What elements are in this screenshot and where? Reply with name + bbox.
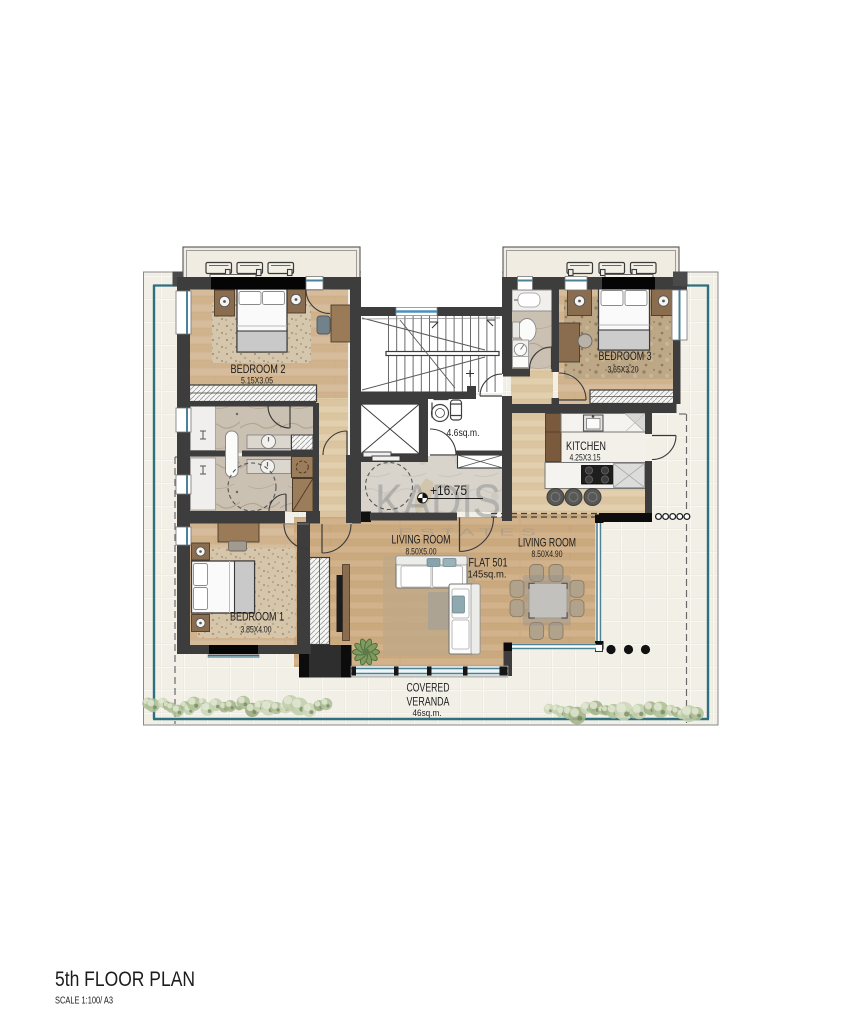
svg-text:46sq.m.: 46sq.m. [413,708,442,718]
svg-text:LIVING ROOM: LIVING ROOM [518,536,576,550]
svg-text:145sq.m.: 145sq.m. [468,569,507,581]
svg-text:VERANDA: VERANDA [407,697,450,709]
svg-text:8.50X5.00: 8.50X5.00 [406,547,437,558]
svg-text:LIVING ROOM: LIVING ROOM [392,533,451,547]
svg-text:3.65X3.20: 3.65X3.20 [608,365,639,376]
svg-text:4.25X3.15: 4.25X3.15 [570,453,601,464]
svg-text:COVERED: COVERED [407,683,450,695]
svg-text:5th FLOOR PLAN: 5th FLOOR PLAN [55,968,195,991]
svg-text:5.15X3.05: 5.15X3.05 [241,376,273,387]
svg-text:BEDROOM 1: BEDROOM 1 [230,610,284,624]
svg-text:BEDROOM 3: BEDROOM 3 [599,349,652,363]
svg-text:3.85X4.00: 3.85X4.00 [241,625,272,636]
svg-text:4.6sq.m.: 4.6sq.m. [447,428,480,439]
svg-text:BEDROOM 2: BEDROOM 2 [231,362,286,376]
svg-text:8.50X4.90: 8.50X4.90 [532,549,563,560]
svg-text:+16.75: +16.75 [430,483,467,498]
svg-text:SCALE 1:100/ A3: SCALE 1:100/ A3 [55,996,113,1007]
svg-text:KITCHEN: KITCHEN [566,439,606,453]
